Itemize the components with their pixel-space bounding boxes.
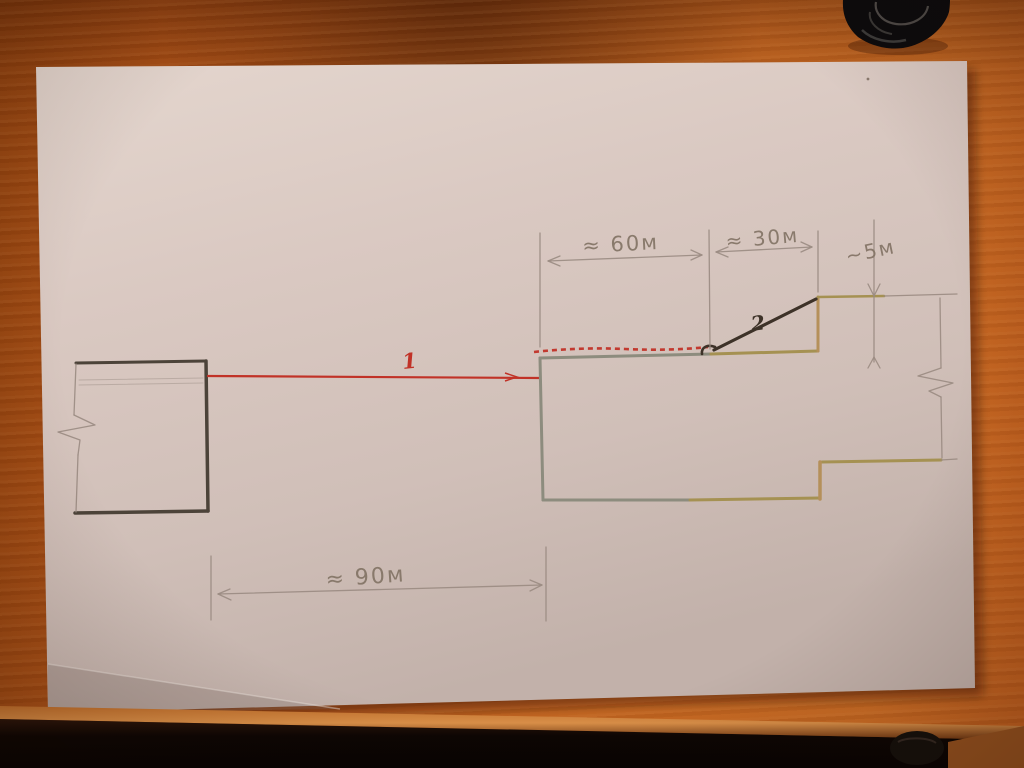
right-structure-bottom-edge-olive bbox=[690, 498, 820, 500]
drawer-knob bbox=[890, 731, 944, 765]
left-structure-right-edge bbox=[206, 361, 208, 511]
dimension-60m-label: ≈ 60м bbox=[582, 230, 660, 258]
paper-sheet bbox=[36, 61, 975, 713]
sketch-scene: 1 2 bbox=[0, 0, 1024, 768]
callout-1-label: 1 bbox=[401, 348, 418, 374]
left-structure-top-edge bbox=[76, 361, 206, 363]
black-cylindrical-object bbox=[843, 0, 950, 55]
table-front bbox=[0, 706, 1024, 768]
paper-speck bbox=[867, 78, 870, 81]
photo-of-sketch: 1 2 bbox=[0, 0, 1024, 768]
extension-bottom-edge bbox=[822, 460, 941, 462]
left-structure-bottom-edge bbox=[75, 511, 208, 513]
